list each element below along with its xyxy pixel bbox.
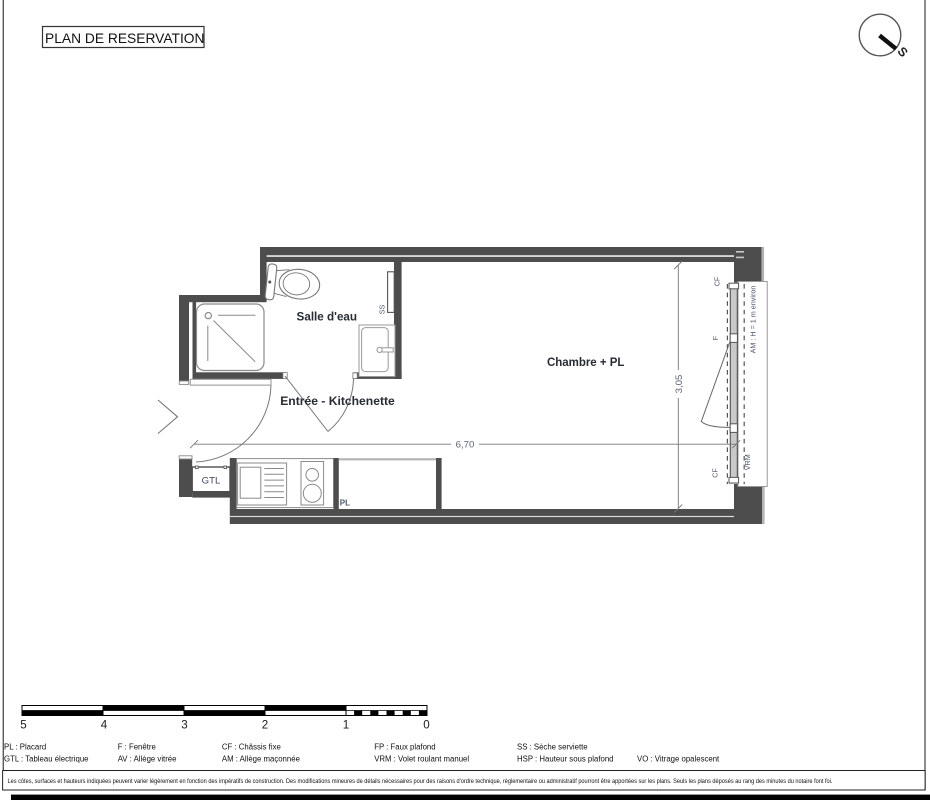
svg-text:VO : Vitrage opalescent: VO : Vitrage opalescent <box>637 755 720 764</box>
svg-text:3,05: 3,05 <box>674 375 685 394</box>
svg-text:PL : Placard: PL : Placard <box>4 743 46 752</box>
svg-text:GTL: GTL <box>202 476 221 487</box>
svg-text:Les côtes, surfaces et hauteur: Les côtes, surfaces et hauteurs indiquée… <box>8 778 833 785</box>
svg-text:AV : Allège vitrée: AV : Allège vitrée <box>118 755 177 764</box>
svg-text:CF: CF <box>712 276 721 286</box>
svg-text:Entrée - Kitchenette: Entrée - Kitchenette <box>280 394 395 408</box>
svg-text:CF : Châssis fixe: CF : Châssis fixe <box>222 743 281 752</box>
svg-text:6,70: 6,70 <box>456 440 475 451</box>
svg-text:2: 2 <box>262 719 268 732</box>
svg-text:4: 4 <box>101 719 108 732</box>
svg-text:SS : Sèche serviette: SS : Sèche serviette <box>517 743 588 752</box>
svg-text:Salle d'eau: Salle d'eau <box>297 309 358 323</box>
svg-text:1: 1 <box>343 719 349 732</box>
svg-text:AM : Allège maçonnée: AM : Allège maçonnée <box>222 755 300 764</box>
svg-text:AM : H = 1 m environ: AM : H = 1 m environ <box>748 286 757 354</box>
svg-text:PLAN DE RESERVATION: PLAN DE RESERVATION <box>45 31 204 46</box>
svg-text:0: 0 <box>423 719 429 732</box>
svg-text:Chambre + PL: Chambre + PL <box>547 355 625 369</box>
svg-text:CF: CF <box>711 468 720 478</box>
svg-text:F: F <box>711 335 720 340</box>
svg-text:F : Fenêtre: F : Fenêtre <box>118 743 156 752</box>
svg-text:VRM : Volet roulant manuel: VRM : Volet roulant manuel <box>374 755 469 764</box>
svg-text:FP : Faux plafond: FP : Faux plafond <box>374 743 435 752</box>
svg-text:GTL : Tableau électrique: GTL : Tableau électrique <box>4 755 89 764</box>
svg-text:SS: SS <box>377 305 386 315</box>
svg-text:HSP : Hauteur sous plafond: HSP : Hauteur sous plafond <box>517 755 614 764</box>
svg-text:5: 5 <box>20 719 26 732</box>
svg-text:3: 3 <box>181 719 187 732</box>
svg-text:PL: PL <box>340 499 350 508</box>
